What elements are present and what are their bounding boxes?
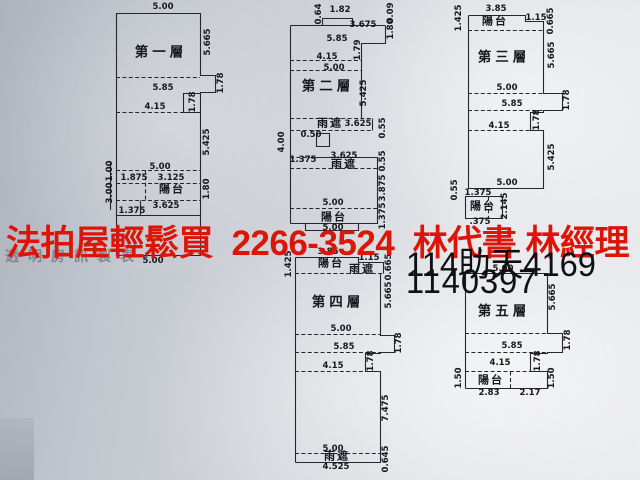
dimension-label: 4.15 bbox=[489, 122, 510, 131]
dimension-label: 5.85 bbox=[502, 342, 523, 351]
dimension-label: 4.15 bbox=[323, 362, 344, 371]
dimension-label: 5.665 bbox=[549, 284, 558, 311]
dimension-label: 5.00 bbox=[331, 325, 352, 334]
dimension-label: 3.675 bbox=[350, 21, 377, 30]
dimension-label: 1.78 bbox=[533, 110, 542, 131]
dimension-label: 1.80 bbox=[203, 179, 212, 200]
room-label: 陽台 bbox=[159, 185, 185, 196]
dimension-label: 3.625 bbox=[153, 202, 180, 211]
dimension-label: 5.00 bbox=[323, 199, 344, 208]
dimension-label: 3.85 bbox=[486, 5, 507, 14]
dimension-label: 3.625 bbox=[345, 120, 372, 129]
dimension-label: 5.665 bbox=[204, 29, 213, 56]
dimension-label: 1.50 bbox=[455, 368, 464, 389]
dimension-label: 5.00 bbox=[153, 3, 174, 12]
dimension-label: 1.00 bbox=[106, 161, 115, 182]
dimension-label: 0.665 bbox=[547, 8, 556, 35]
dimension-label: 5.665 bbox=[548, 42, 557, 69]
dimension-label: 0.55 bbox=[379, 151, 388, 172]
scanned-floorplan-flyer: 第一層陽台5.005.6651.785.851.784.155.4255.001… bbox=[0, 0, 640, 480]
dimension-label: 0.55 bbox=[451, 180, 460, 201]
dimension-label: 3.00 bbox=[106, 183, 115, 204]
dimension-label: 3.875 bbox=[379, 175, 388, 202]
dimension-label: 1.375 bbox=[290, 156, 317, 165]
dimension-label: 1.425 bbox=[455, 5, 464, 32]
dimension-label: 2.83 bbox=[479, 389, 500, 398]
dimension-label: 1.875 bbox=[121, 174, 148, 183]
dimension-label: 1.78 bbox=[564, 330, 573, 351]
dimension-label: 4.15 bbox=[490, 359, 511, 368]
dimension-label: 1.78 bbox=[189, 92, 198, 113]
dimension-label: 0.64 bbox=[315, 4, 324, 25]
dimension-label: 5.85 bbox=[153, 84, 174, 93]
dimension-label: 1.78 bbox=[395, 333, 404, 354]
dimension-label: 3.625 bbox=[331, 152, 358, 161]
dimension-label: 1.78 bbox=[367, 351, 376, 372]
floor-name-label: 第三層 bbox=[478, 50, 531, 64]
dimension-label: 4.00 bbox=[278, 132, 287, 153]
dimension-label: 5.00 bbox=[323, 445, 344, 454]
dimension-label: 1.78 bbox=[217, 73, 226, 94]
dimension-label: 5.85 bbox=[334, 343, 355, 352]
dimension-label: 1.82 bbox=[330, 6, 351, 15]
room-label: 雨遮 bbox=[349, 265, 375, 276]
dimension-label: 7.475 bbox=[382, 395, 391, 422]
dimension-label: 5.00 bbox=[497, 84, 518, 93]
dimension-label: 5.425 bbox=[360, 80, 369, 107]
case-number-line2: 1140397 bbox=[406, 263, 537, 302]
dimension-label: 5.00 bbox=[497, 179, 518, 188]
dimension-label: 1.15 bbox=[526, 14, 547, 23]
dimension-label: 4.15 bbox=[317, 53, 338, 62]
room-label: 雨遮 bbox=[317, 119, 343, 130]
room-label: 陽台 bbox=[478, 376, 504, 387]
room-label: 雨遮 bbox=[331, 160, 357, 171]
dimension-label: 5.85 bbox=[502, 100, 523, 109]
room-label: 陽台 bbox=[482, 17, 508, 28]
dimension-label: 5.425 bbox=[203, 129, 212, 156]
room-label: 陽台 bbox=[470, 202, 496, 213]
floor-name-label: 第一層 bbox=[135, 45, 188, 59]
dimension-label: 1.80 bbox=[387, 19, 396, 40]
dimension-label: 4.525 bbox=[323, 463, 350, 472]
dimension-label: 5.00 bbox=[150, 163, 171, 172]
dimension-label: 2.17 bbox=[520, 389, 541, 398]
dimension-label: 5.665 bbox=[385, 282, 394, 309]
floor-name-label: 第五層 bbox=[478, 304, 531, 318]
dimension-label: 1.78 bbox=[534, 351, 543, 372]
dimension-label: 5.00 bbox=[324, 64, 345, 73]
dimension-label: 5.85 bbox=[327, 35, 348, 44]
dimension-label: 1.50 bbox=[548, 368, 557, 389]
dimension-label: 0.55 bbox=[379, 118, 388, 139]
dimension-label: 0.50 bbox=[301, 131, 322, 140]
dimension-label: 1.78 bbox=[563, 90, 572, 111]
dimension-label: 1.79 bbox=[354, 40, 363, 61]
dimension-label: 1.375 bbox=[119, 207, 146, 216]
dimension-label: 4.15 bbox=[145, 103, 166, 112]
dimension-label: 0.645 bbox=[382, 446, 391, 473]
dimension-label: 1.375 bbox=[465, 189, 492, 198]
dimension-label: 5.425 bbox=[548, 144, 557, 171]
dimension-label: 3.125 bbox=[158, 174, 185, 183]
floor-name-label: 第四層 bbox=[312, 295, 365, 309]
floor-name-label: 第二層 bbox=[302, 79, 355, 93]
